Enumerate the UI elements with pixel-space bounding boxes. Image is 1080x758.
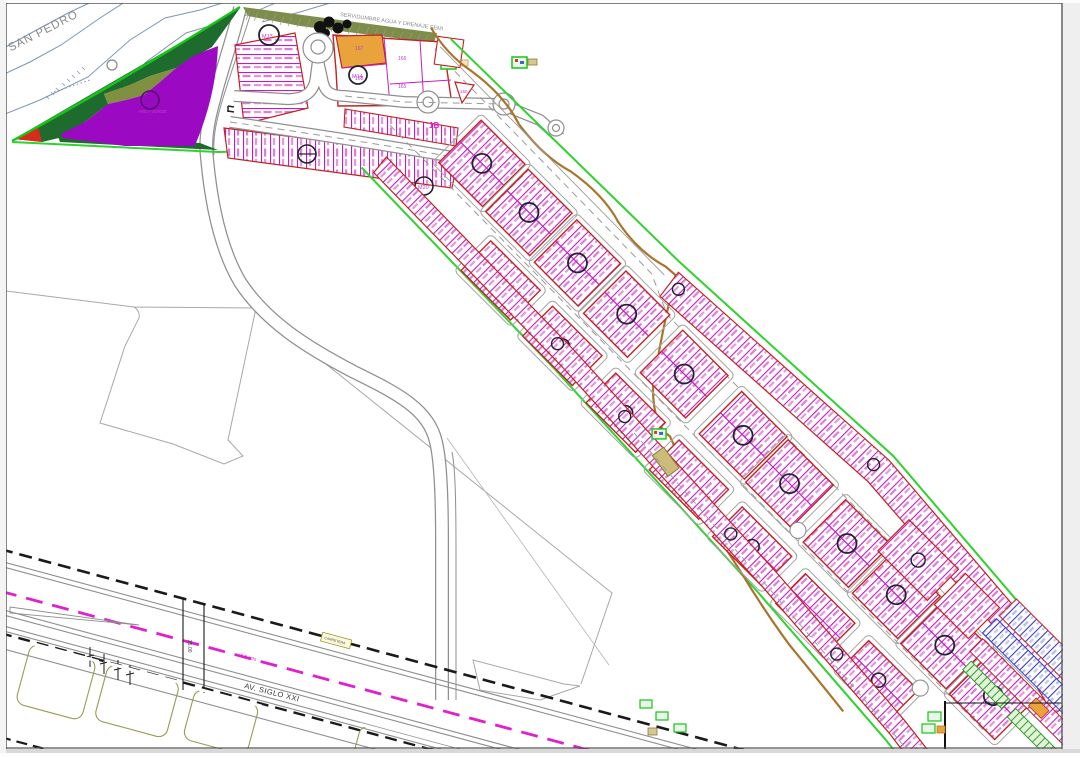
svg-text:25.00: 25.00 (186, 640, 192, 653)
svg-text:1B: 1B (429, 121, 439, 130)
svg-text:165: 165 (398, 84, 407, 90)
svg-text:166: 166 (398, 56, 407, 62)
svg-text:M20: M20 (418, 185, 429, 191)
svg-text:M17: M17 (144, 99, 156, 105)
svg-text:150: 150 (460, 89, 468, 94)
svg-text:M14: M14 (352, 74, 363, 80)
svg-text:M13: M13 (262, 34, 273, 40)
svg-text:AREA VERDE: AREA VERDE (138, 109, 167, 114)
svg-text:167: 167 (355, 46, 364, 52)
